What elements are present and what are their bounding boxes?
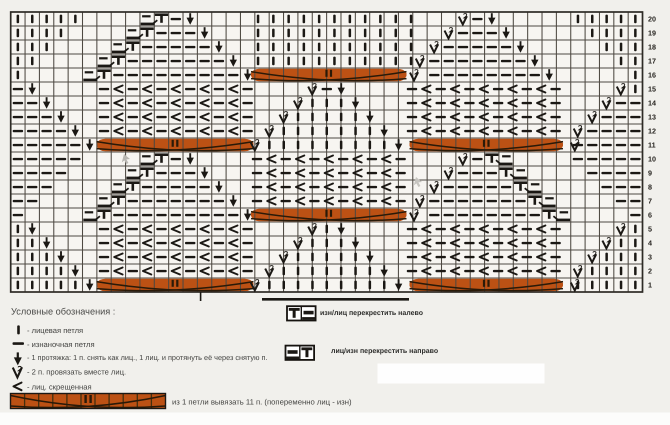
- svg-text:из 1 петли вывязать 11 п. (поп: из 1 петли вывязать 11 п. (попеременно л…: [172, 398, 352, 407]
- svg-text:- лиц. скрещенная: - лиц. скрещенная: [27, 382, 92, 391]
- svg-text:Условные обозначения :: Условные обозначения :: [11, 307, 115, 317]
- svg-text:3: 3: [648, 253, 652, 262]
- svg-text:9: 9: [648, 169, 652, 178]
- svg-text:13: 13: [648, 113, 656, 122]
- svg-text:- 2 п. провязать вместе лиц.: - 2 п. провязать вместе лиц.: [27, 368, 126, 377]
- svg-text:10: 10: [648, 155, 656, 164]
- svg-text:14: 14: [648, 99, 656, 108]
- svg-text:18: 18: [648, 43, 656, 52]
- svg-text:5: 5: [648, 225, 652, 234]
- svg-text:- изнаночная петля: - изнаночная петля: [27, 340, 95, 349]
- svg-text:- 1 протяжка: 1 п. снять как л: - 1 протяжка: 1 п. снять как лиц., 1 лиц…: [27, 353, 268, 362]
- svg-text:17: 17: [648, 57, 656, 66]
- svg-text:- лицевая петля: - лицевая петля: [27, 326, 83, 335]
- svg-text:2: 2: [648, 267, 652, 276]
- svg-text:7: 7: [648, 197, 652, 206]
- svg-text:15: 15: [648, 85, 656, 94]
- svg-text:11: 11: [648, 141, 656, 150]
- svg-text:4: 4: [648, 239, 652, 248]
- svg-text:12: 12: [648, 127, 656, 136]
- svg-text:6: 6: [648, 211, 652, 220]
- svg-text:изн/лиц перекрестить налево: изн/лиц перекрестить налево: [320, 309, 423, 317]
- svg-text:8: 8: [648, 183, 652, 192]
- svg-text:1: 1: [648, 281, 652, 290]
- svg-text:16: 16: [648, 71, 656, 80]
- svg-text:19: 19: [648, 29, 656, 38]
- svg-text:20: 20: [648, 15, 656, 24]
- svg-text:лиц/изн перекрестить направо: лиц/изн перекрестить направо: [331, 347, 438, 355]
